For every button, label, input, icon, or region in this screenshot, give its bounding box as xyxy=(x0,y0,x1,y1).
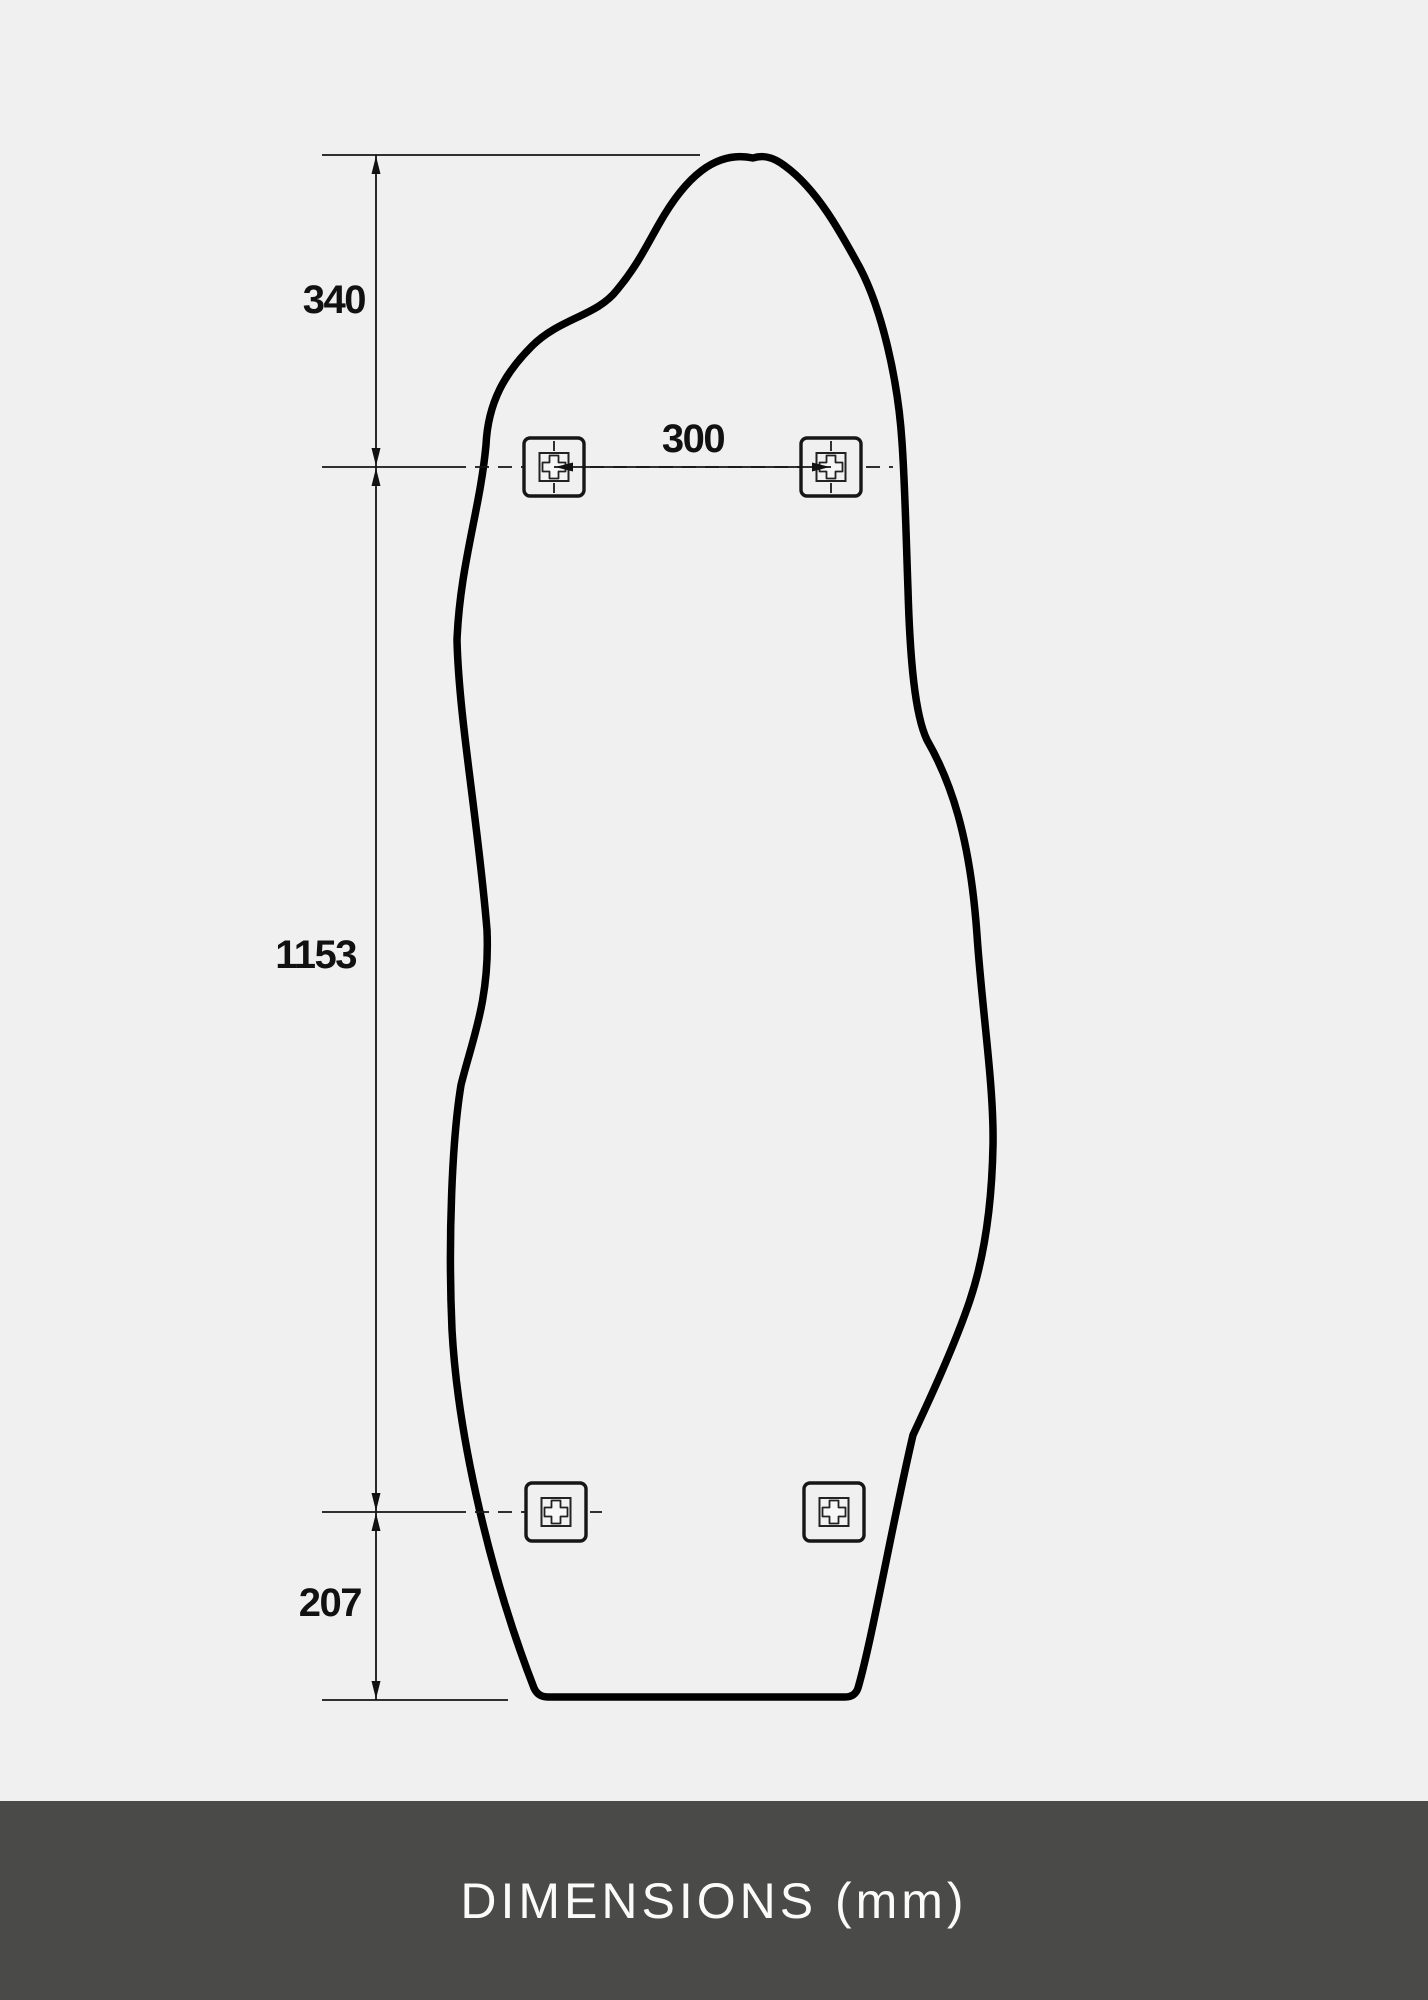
dimension-arrowhead-icon xyxy=(372,1493,381,1511)
mirror-outline xyxy=(450,157,993,1697)
dimension-arrowhead-icon xyxy=(372,156,381,174)
dimension-label-300: 300 xyxy=(662,417,724,461)
dimension-arrowhead-icon xyxy=(372,468,381,486)
dimension-label-340: 340 xyxy=(303,278,365,322)
mount-bracket-icon xyxy=(804,1483,864,1541)
dimension-diagram-page: 340 1153 207 300 DIMENSIONS (mm) xyxy=(0,0,1428,2000)
mount-bracket-icon xyxy=(526,1483,586,1541)
dimension-arrowhead-icon xyxy=(372,1513,381,1531)
footer-caption: DIMENSIONS (mm) xyxy=(460,1872,967,1930)
lower-mounting-holes xyxy=(452,1483,864,1541)
dimension-arrowhead-icon xyxy=(372,1681,381,1699)
mirror-dimension-drawing: 340 1153 207 300 xyxy=(0,0,1428,1801)
dimension-arrowhead-icon xyxy=(372,448,381,466)
footer-caption-bar: DIMENSIONS (mm) xyxy=(0,1801,1428,2000)
dimension-label-1153: 1153 xyxy=(275,933,356,977)
dimension-label-207: 207 xyxy=(299,1581,361,1625)
upper-hole-spacing-dimension: 300 xyxy=(452,417,893,496)
